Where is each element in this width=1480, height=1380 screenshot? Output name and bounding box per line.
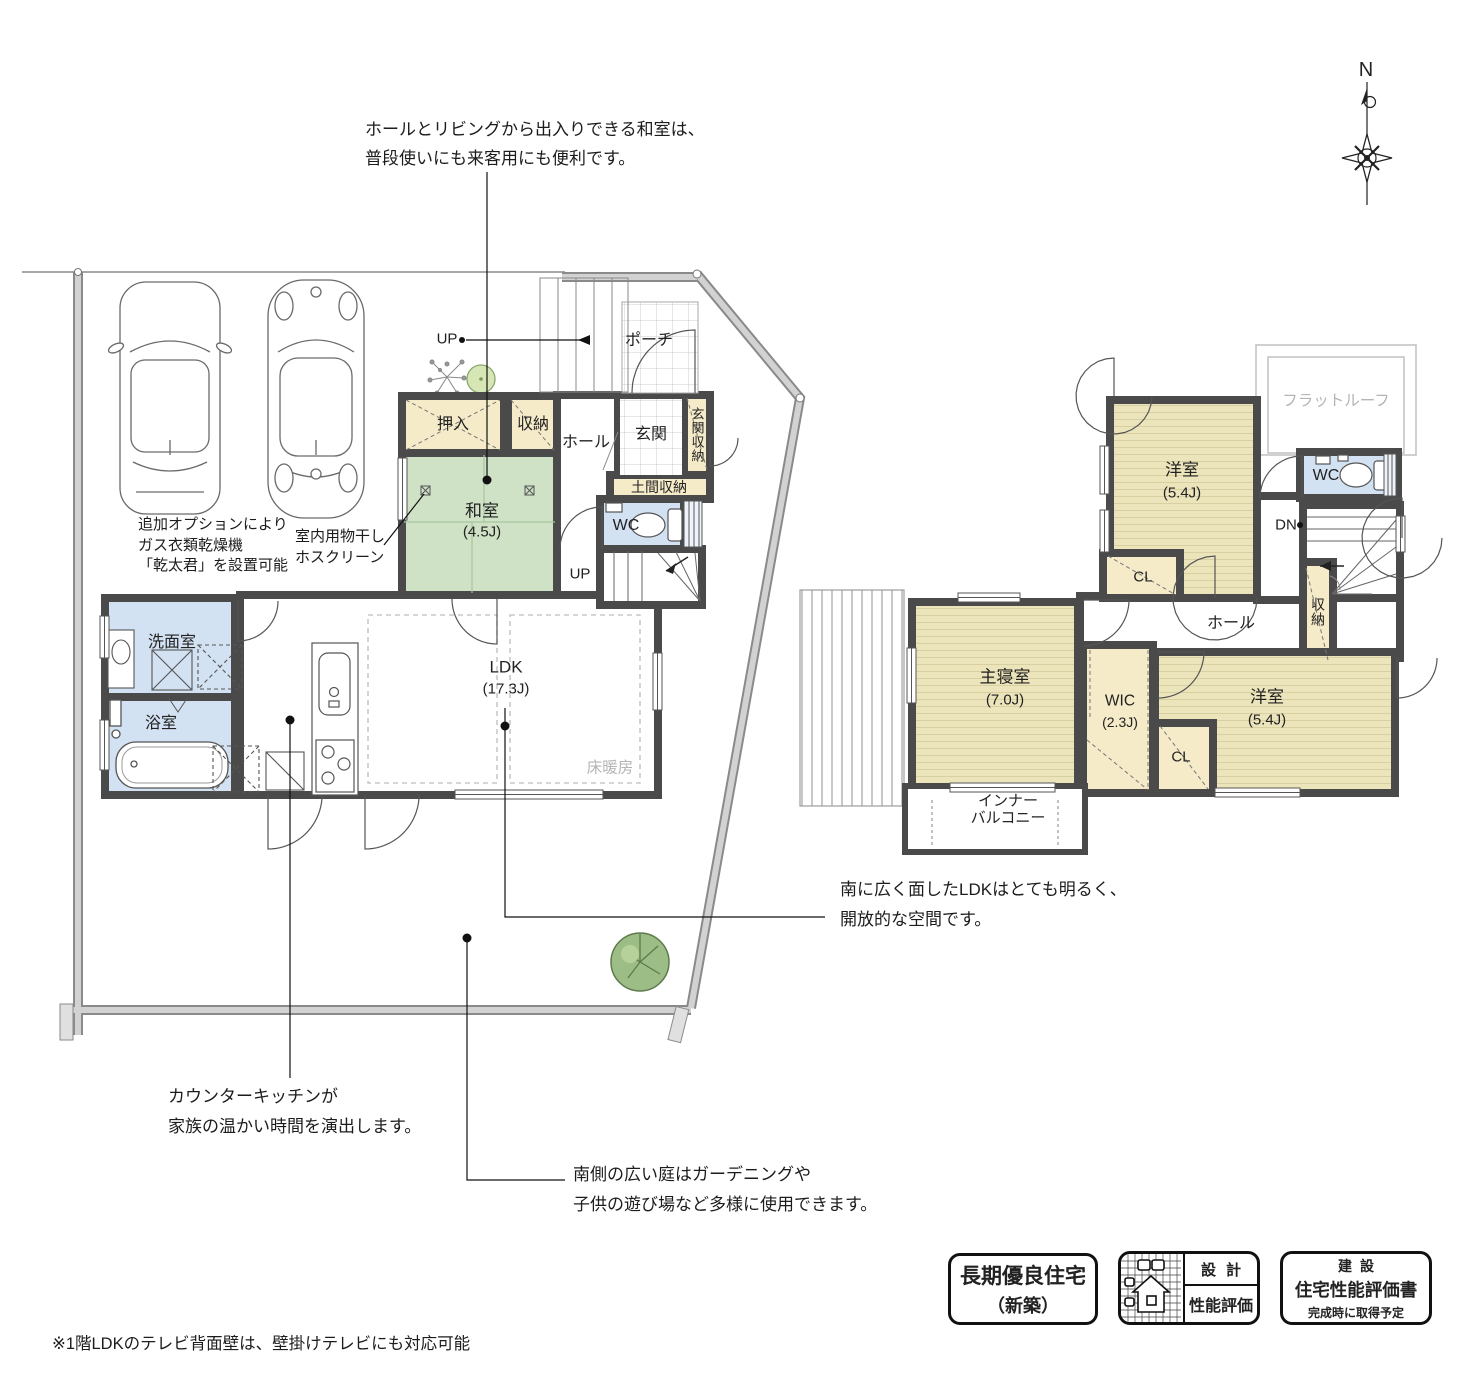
room-label-ldk: LDK	[489, 659, 522, 676]
badge-text: （新築）	[987, 1292, 1059, 1318]
stairs-1f-entrance	[540, 278, 628, 392]
leader-dot	[483, 476, 492, 485]
annotation-line: 南側の広い庭はガーデニングや	[573, 1160, 877, 1190]
annotation-washitsu: ホールとリビングから出入りできる和室は、 普段使いにも来客用にも便利です。	[365, 115, 705, 173]
window-icon	[1215, 788, 1300, 797]
window-icon	[100, 616, 109, 658]
annotation-line: 普段使いにも来客用にも便利です。	[365, 144, 705, 173]
room-label-hall-1f: ホール	[562, 435, 610, 451]
room-label-yokushitsu: 浴室	[145, 716, 177, 732]
lower-roof-hatch	[800, 590, 904, 806]
window-icon	[653, 653, 662, 710]
room-label-yoshitsu-s: 洋室	[1250, 689, 1284, 706]
annotation-line: ホールとリビングから出入りできる和室は、	[365, 115, 705, 144]
badge-text: 住宅性能評価書	[1295, 1277, 1418, 1302]
room-label-genkan-shuno: 玄関収納	[691, 407, 704, 463]
window-icon	[1100, 446, 1109, 494]
room-label-shushinshitsu: 主寝室	[980, 669, 1031, 686]
annotation-garden: 南側の広い庭はガーデニングや 子供の遊び場など多様に使用できます。	[573, 1160, 877, 1220]
room-label-hall-2f: ホール	[1207, 616, 1255, 632]
badge-text: 性能評価	[1185, 1286, 1257, 1322]
window-icon	[1396, 516, 1405, 552]
annotation-hoscreen: 室内用物干し ホスクリーン	[295, 527, 385, 568]
annotation-line: 家族の温かい時間を演出します。	[168, 1112, 421, 1142]
shrub-icon	[611, 933, 669, 991]
room-size-yoshitsu-s: (5.4J)	[1248, 713, 1286, 728]
room-size-ldk: (17.3J)	[483, 682, 530, 697]
room-label-oshiire: 押入	[437, 417, 469, 433]
annotation-gas-dryer: 追加オプションにより ガス衣類乾燥機 「乾太君」を設置可能	[138, 515, 288, 577]
tree-icon	[467, 365, 495, 393]
room-label-genkan: 玄関	[635, 427, 667, 443]
floorplan-page: 押入 収納 ホール 玄関 玄関収納 土間収納 ポーチ 和室 (4.5J) WC …	[0, 0, 1480, 1380]
room-label-wic: WIC	[1105, 693, 1135, 709]
badge-construction-evaluation: 建設 住宅性能評価書 完成時に取得予定	[1280, 1251, 1432, 1325]
annotation-line: 「乾太君」を設置可能	[138, 556, 288, 577]
washbasin-icon	[108, 630, 134, 688]
compass-north-label: N	[1359, 60, 1373, 80]
tree-icon	[428, 360, 466, 395]
wc-cabinet	[684, 501, 702, 547]
badge-text: 完成時に取得予定	[1308, 1304, 1404, 1321]
badge-text: 長期優良住宅	[960, 1260, 1086, 1290]
room-label-yoshitsu-n: 洋室	[1165, 462, 1199, 479]
badge-design-evaluation: 設計 性能評価	[1118, 1251, 1260, 1325]
room-label-wc-2f: WC	[1313, 468, 1340, 484]
room-label-balcony-1: インナー	[978, 794, 1038, 809]
room-label-doma-shuno: 土間収納	[631, 480, 687, 494]
car-icon	[268, 280, 364, 518]
annotation-line: 開放的な空間です。	[840, 905, 1127, 935]
wc2-cabinet	[1384, 454, 1396, 496]
car-icon	[107, 282, 233, 514]
label-floor-heating: 床暖房	[587, 760, 634, 776]
room-size-yoshitsu-n: (5.4J)	[1163, 486, 1201, 501]
room-label-cl-n: CL	[1133, 570, 1152, 585]
window-icon	[455, 790, 603, 799]
window-icon	[950, 783, 1055, 792]
badge-long-term-quality: 長期優良住宅 （新築）	[948, 1253, 1098, 1325]
annotation-ldk: 南に広く面したLDKはとても明るく、 開放的な空間です。	[840, 875, 1127, 935]
badge-text: 設計	[1185, 1254, 1257, 1286]
dn-dot	[1297, 522, 1303, 528]
room-size-shushinshitsu: (7.0J)	[986, 693, 1024, 708]
room-size-wic: (2.3J)	[1102, 715, 1138, 729]
compass-icon	[1342, 82, 1392, 205]
annotation-line: 南に広く面したLDKはとても明るく、	[840, 875, 1127, 905]
room-label-shuno-2f: 収納	[1311, 597, 1325, 627]
leader-dot	[501, 722, 510, 731]
house-grid-icon	[1121, 1254, 1185, 1322]
window-icon	[398, 458, 407, 520]
room-label-senmen: 洗面室	[148, 635, 196, 651]
annotation-line: 室内用物干し	[295, 527, 385, 548]
room-label-washitsu: 和室	[465, 503, 499, 520]
annotation-line: カウンターキッチンが	[168, 1082, 421, 1112]
annotation-line: ホスクリーン	[295, 548, 385, 569]
leader-dot	[286, 716, 295, 725]
room-label-shuno-1f: 収納	[517, 417, 549, 433]
label-flat-roof: フラットルーフ	[1282, 393, 1390, 409]
window-icon	[100, 720, 109, 770]
room-label-cl-s: CL	[1171, 750, 1190, 765]
room-size-washitsu: (4.5J)	[463, 525, 501, 540]
annotation-line: 追加オプションにより	[138, 515, 288, 536]
label-up-entrance: UP	[437, 332, 458, 347]
leader-dot	[463, 934, 472, 943]
up-dot	[459, 337, 465, 343]
window-icon	[1100, 510, 1109, 552]
annotation-line: ガス衣類乾燥機	[138, 536, 288, 557]
room-label-wc-1f: WC	[613, 518, 640, 534]
annotation-line: 子供の遊び場など多様に使用できます。	[573, 1190, 877, 1220]
footnote: ※1階LDKのテレビ背面壁は、壁掛けテレビにも対応可能	[52, 1330, 470, 1354]
annotation-kitchen: カウンターキッチンが 家族の温かい時間を演出します。	[168, 1082, 421, 1142]
room-label-balcony-2: バルコニー	[971, 811, 1046, 826]
window-icon	[907, 648, 916, 703]
kitchen-icon	[312, 643, 358, 795]
label-up-stairs: UP	[570, 567, 591, 582]
up-arrow	[578, 335, 590, 345]
badge-text: 建設	[1330, 1256, 1382, 1276]
label-dn: DN	[1275, 518, 1297, 533]
window-icon	[958, 593, 1020, 602]
room-label-porch: ポーチ	[625, 333, 673, 349]
